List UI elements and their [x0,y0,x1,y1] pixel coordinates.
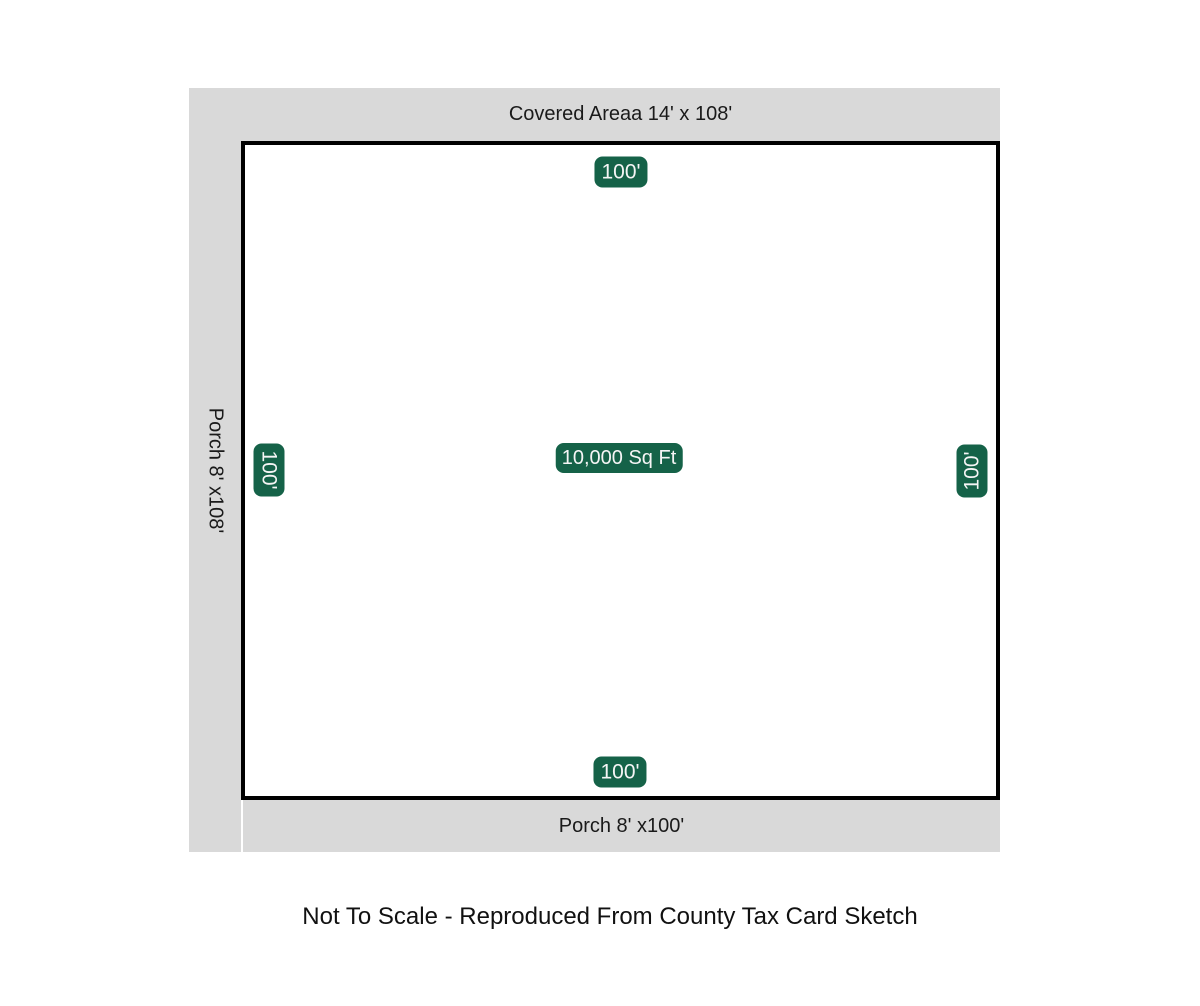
porch-bottom-strip: Porch 8' x100' [243,800,1000,852]
dimension-badge-top: 100' [594,157,647,188]
porch-left-label: Porch 8' x108' [204,407,227,533]
footer-note: Not To Scale - Reproduced From County Ta… [10,903,1200,931]
porch-left-strip: Porch 8' x108' [189,88,241,852]
dimension-badge-bottom: 100' [593,757,646,788]
dimension-badge-left: 100' [254,443,285,496]
dimension-badge-right: 100' [957,444,988,497]
covered-area-strip: Covered Areaa 14' x 108' [189,88,1000,141]
covered-area-label: Covered Areaa 14' x 108' [509,103,732,126]
porch-bottom-label: Porch 8' x100' [559,815,685,838]
tax-card-sketch: Covered Areaa 14' x 108' Porch 8' x108' … [0,0,1200,1006]
lot-area-badge: 10,000 Sq Ft [556,443,683,473]
